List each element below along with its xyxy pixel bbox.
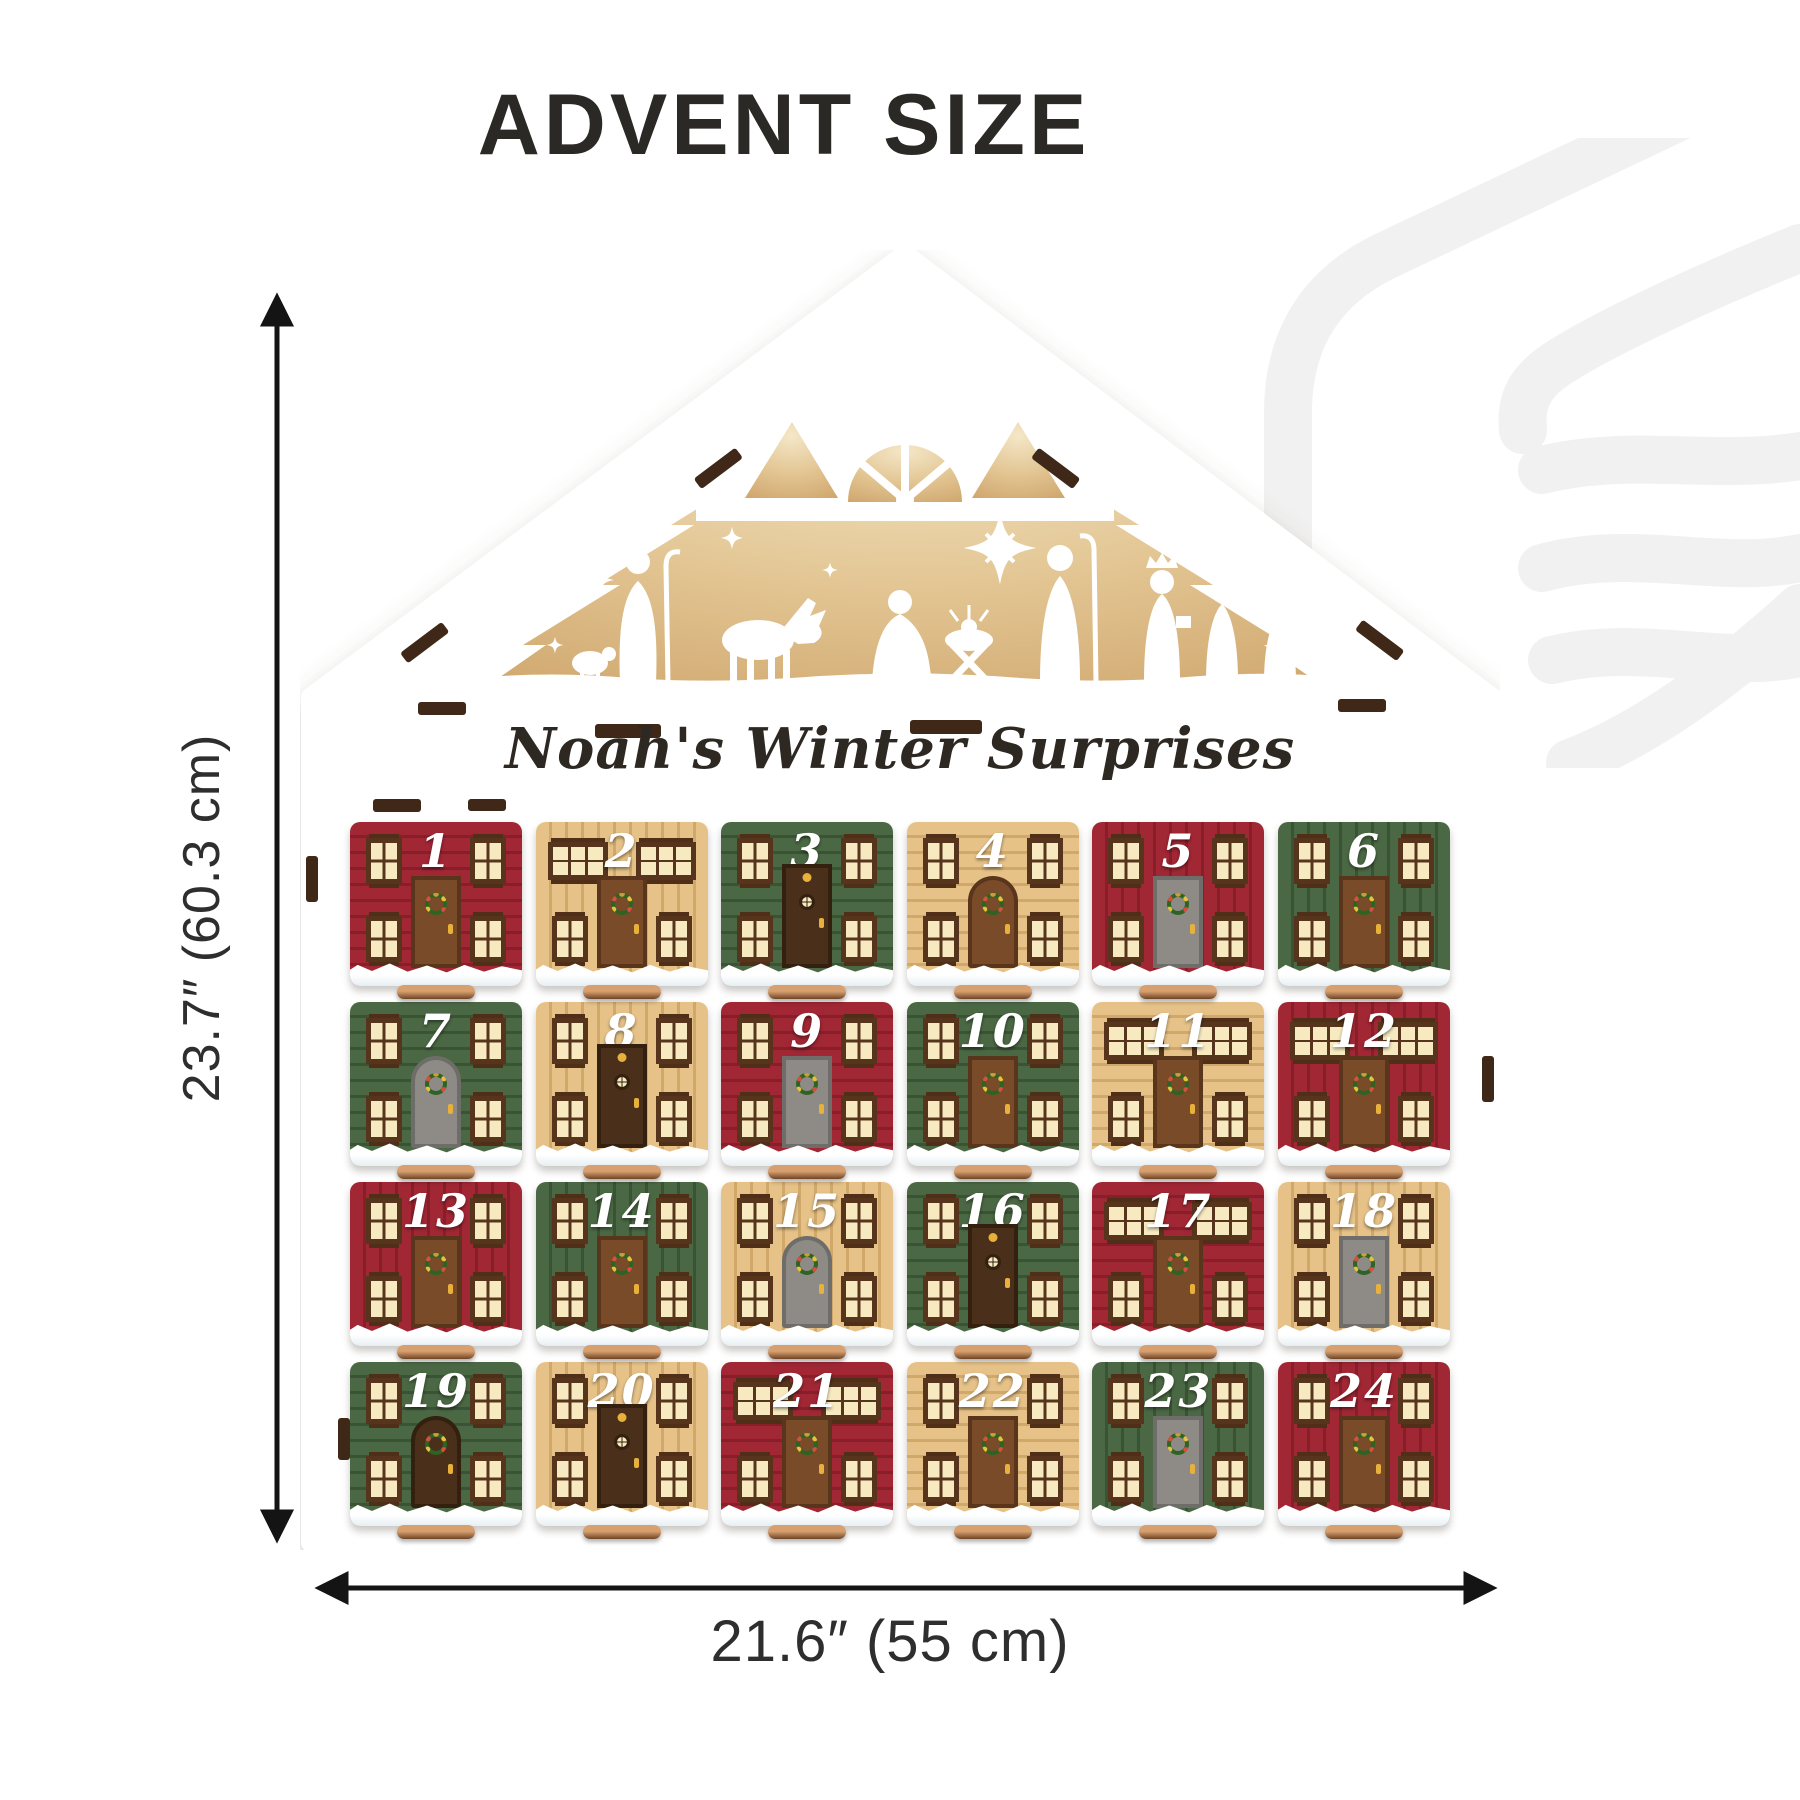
- drawer-handle: [1139, 985, 1217, 999]
- window: [1212, 1276, 1248, 1322]
- drawer-handle: [1325, 1525, 1403, 1539]
- drawer-handle: [583, 1165, 661, 1179]
- advent-box: 19: [350, 1362, 522, 1526]
- box-number: 4: [907, 822, 1079, 880]
- doorknob: [819, 918, 824, 928]
- house-facade: 12: [1278, 1002, 1450, 1166]
- wreath-icon: [1353, 893, 1375, 915]
- window: [552, 1276, 588, 1322]
- advent-box: 1: [350, 822, 522, 986]
- window: [470, 1276, 506, 1322]
- wreath-icon: [1167, 1253, 1189, 1275]
- wreath-icon: [796, 1433, 818, 1455]
- advent-size-infographic: ADVENT SIZE: [0, 0, 1800, 1800]
- page-title: ADVENT SIZE: [0, 76, 1568, 175]
- door: [1339, 876, 1389, 968]
- doorknob: [1376, 1464, 1381, 1474]
- porthole-window: [614, 1074, 630, 1090]
- window: [923, 1456, 959, 1502]
- box-number: 24: [1278, 1362, 1450, 1420]
- window: [656, 1456, 692, 1502]
- window: [923, 916, 959, 962]
- height-dimension-label: 23.7″ (60.3 cm): [172, 618, 232, 1218]
- house-facade: 19: [350, 1362, 522, 1526]
- advent-box: 5: [1092, 822, 1264, 986]
- drawer-handle: [954, 985, 1032, 999]
- window: [1027, 1276, 1063, 1322]
- drawer-handle: [583, 1525, 661, 1539]
- wreath-icon: [982, 1433, 1004, 1455]
- advent-box: 18: [1278, 1182, 1450, 1346]
- advent-box: 6: [1278, 822, 1450, 986]
- house-facade: 18: [1278, 1182, 1450, 1346]
- advent-box: 22: [907, 1362, 1079, 1526]
- box-number: 17: [1092, 1182, 1264, 1240]
- window: [1027, 1096, 1063, 1142]
- door: [1153, 1416, 1203, 1508]
- window: [737, 916, 773, 962]
- house-facade: 6: [1278, 822, 1450, 986]
- drawer-handle: [397, 1165, 475, 1179]
- bell-icon: [988, 1233, 997, 1242]
- advent-box: 24: [1278, 1362, 1450, 1526]
- wreath-icon: [796, 1253, 818, 1275]
- door: [1153, 876, 1203, 968]
- window: [737, 1096, 773, 1142]
- window: [1027, 1456, 1063, 1502]
- house-facade: 24: [1278, 1362, 1450, 1526]
- drawer-handle: [397, 985, 475, 999]
- house-facade: 2: [536, 822, 708, 986]
- doorknob: [1190, 1104, 1195, 1114]
- window: [366, 1276, 402, 1322]
- advent-box: 7: [350, 1002, 522, 1166]
- door: [1339, 1416, 1389, 1508]
- advent-box: 23: [1092, 1362, 1264, 1526]
- bell-icon: [803, 873, 812, 882]
- bell-icon: [617, 1413, 626, 1422]
- drawer-handle: [768, 985, 846, 999]
- window: [552, 1456, 588, 1502]
- box-number: 15: [721, 1182, 893, 1240]
- wreath-icon: [1353, 1073, 1375, 1095]
- drawer-handle: [1325, 985, 1403, 999]
- door: [597, 876, 647, 968]
- window: [366, 1456, 402, 1502]
- doorknob: [1190, 1464, 1195, 1474]
- doorknob: [634, 1098, 639, 1108]
- wreath-icon: [611, 1253, 633, 1275]
- advent-box: 16: [907, 1182, 1079, 1346]
- window: [1398, 1276, 1434, 1322]
- box-number: 14: [536, 1182, 708, 1240]
- house-facade: 21: [721, 1362, 893, 1526]
- door: [411, 876, 461, 968]
- door: [968, 1416, 1018, 1508]
- advent-box: 15: [721, 1182, 893, 1346]
- box-number: 9: [721, 1002, 893, 1060]
- drawer-handle: [583, 985, 661, 999]
- advent-box: 10: [907, 1002, 1079, 1166]
- advent-box: 12: [1278, 1002, 1450, 1166]
- window: [841, 1456, 877, 1502]
- house-facade: 1: [350, 822, 522, 986]
- doorknob: [448, 1104, 453, 1114]
- wreath-icon: [1167, 1433, 1189, 1455]
- advent-grid: 1 2: [350, 822, 1450, 1526]
- window: [841, 916, 877, 962]
- advent-box: 3: [721, 822, 893, 986]
- doorknob: [819, 1104, 824, 1114]
- wreath-icon: [611, 893, 633, 915]
- doorknob: [1005, 924, 1010, 934]
- window: [1398, 1096, 1434, 1142]
- wreath-icon: [982, 1073, 1004, 1095]
- window: [1212, 1456, 1248, 1502]
- name-plaque: Noah's Winter Surprises: [300, 716, 1500, 782]
- house-facade: 15: [721, 1182, 893, 1346]
- doorknob: [819, 1284, 824, 1294]
- door: [968, 1056, 1018, 1148]
- doorknob: [1376, 924, 1381, 934]
- window: [841, 1096, 877, 1142]
- window: [470, 916, 506, 962]
- drawer-handle: [1139, 1165, 1217, 1179]
- door: [411, 1416, 461, 1508]
- door: [782, 1236, 832, 1328]
- window: [656, 1276, 692, 1322]
- drawer-handle: [1139, 1345, 1217, 1359]
- box-number: 5: [1092, 822, 1264, 880]
- wreath-icon: [425, 1073, 447, 1095]
- house-facade: 8: [536, 1002, 708, 1166]
- box-number: 1: [350, 822, 522, 880]
- box-number: 12: [1278, 1002, 1450, 1060]
- door: [1153, 1236, 1203, 1328]
- box-number: 19: [350, 1362, 522, 1420]
- door: [597, 1044, 647, 1148]
- window: [1294, 1456, 1330, 1502]
- window: [470, 1456, 506, 1502]
- drawer-handle: [768, 1525, 846, 1539]
- doorknob: [634, 1458, 639, 1468]
- porthole-window: [985, 1254, 1001, 1270]
- advent-box: 11: [1092, 1002, 1264, 1166]
- house-facade: 10: [907, 1002, 1079, 1166]
- door: [1339, 1056, 1389, 1148]
- advent-calendar: Noah's Winter Surprises 1 2: [300, 250, 1500, 1550]
- window: [366, 916, 402, 962]
- doorknob: [1190, 924, 1195, 934]
- advent-box: 17: [1092, 1182, 1264, 1346]
- drawer-handle: [768, 1345, 846, 1359]
- window: [1212, 1096, 1248, 1142]
- box-number: 18: [1278, 1182, 1450, 1240]
- house-facade: 17: [1092, 1182, 1264, 1346]
- window: [1398, 1456, 1434, 1502]
- doorknob: [819, 1464, 824, 1474]
- drawer-handle: [768, 1165, 846, 1179]
- drawer-handle: [954, 1525, 1032, 1539]
- drawer-handle: [583, 1345, 661, 1359]
- drawer-handle: [1325, 1345, 1403, 1359]
- window: [656, 1096, 692, 1142]
- doorknob: [1190, 1284, 1195, 1294]
- window: [737, 1456, 773, 1502]
- advent-box: 8: [536, 1002, 708, 1166]
- advent-box: 9: [721, 1002, 893, 1166]
- doorknob: [1005, 1104, 1010, 1114]
- advent-box: 2: [536, 822, 708, 986]
- wreath-icon: [425, 893, 447, 915]
- wreath-icon: [425, 1433, 447, 1455]
- doorknob: [1005, 1278, 1010, 1288]
- doorknob: [634, 1284, 639, 1294]
- box-number: 7: [350, 1002, 522, 1060]
- wreath-icon: [1353, 1253, 1375, 1275]
- window: [923, 1276, 959, 1322]
- door: [597, 1236, 647, 1328]
- drawer-handle: [397, 1525, 475, 1539]
- window: [1398, 916, 1434, 962]
- doorknob: [448, 1464, 453, 1474]
- door: [968, 1224, 1018, 1328]
- advent-box: 14: [536, 1182, 708, 1346]
- drawer-handle: [1325, 1165, 1403, 1179]
- doorknob: [634, 924, 639, 934]
- box-number: 11: [1092, 1002, 1264, 1060]
- doorknob: [448, 1284, 453, 1294]
- advent-box: 20: [536, 1362, 708, 1526]
- house-facade: 14: [536, 1182, 708, 1346]
- box-number: 22: [907, 1362, 1079, 1420]
- door: [1339, 1236, 1389, 1328]
- advent-box: 4: [907, 822, 1079, 986]
- window: [656, 916, 692, 962]
- door: [411, 1236, 461, 1328]
- wreath-icon: [1167, 893, 1189, 915]
- house-facade: 16: [907, 1182, 1079, 1346]
- porthole-window: [799, 894, 815, 910]
- doorknob: [1376, 1284, 1381, 1294]
- door: [1153, 1056, 1203, 1148]
- window: [470, 1096, 506, 1142]
- doorknob: [1376, 1104, 1381, 1114]
- drawer-handle: [1139, 1525, 1217, 1539]
- door: [782, 864, 832, 968]
- wreath-icon: [982, 893, 1004, 915]
- box-number: 13: [350, 1182, 522, 1240]
- door: [968, 876, 1018, 968]
- window: [1108, 1096, 1144, 1142]
- doorknob: [1005, 1464, 1010, 1474]
- drawer-handle: [954, 1165, 1032, 1179]
- house-facade: 3: [721, 822, 893, 986]
- wreath-icon: [796, 1073, 818, 1095]
- drawer-handle: [954, 1345, 1032, 1359]
- house-facade: 4: [907, 822, 1079, 986]
- window: [1294, 916, 1330, 962]
- house-facade: 20: [536, 1362, 708, 1526]
- box-number: 10: [907, 1002, 1079, 1060]
- advent-box: 13: [350, 1182, 522, 1346]
- advent-box: 21: [721, 1362, 893, 1526]
- door: [411, 1056, 461, 1148]
- width-dimension-label: 21.6″ (55 cm): [440, 1608, 1340, 1675]
- window: [1027, 916, 1063, 962]
- box-number: 23: [1092, 1362, 1264, 1420]
- doorknob: [448, 924, 453, 934]
- wreath-icon: [1353, 1433, 1375, 1455]
- window: [1108, 1456, 1144, 1502]
- bell-icon: [617, 1053, 626, 1062]
- porthole-window: [614, 1434, 630, 1450]
- door: [782, 1056, 832, 1148]
- door: [782, 1416, 832, 1508]
- window: [1212, 916, 1248, 962]
- house-facade: 9: [721, 1002, 893, 1166]
- box-number: 6: [1278, 822, 1450, 880]
- window: [923, 1096, 959, 1142]
- box-number: 21: [721, 1362, 893, 1420]
- house-facade: 23: [1092, 1362, 1264, 1526]
- wreath-icon: [1167, 1073, 1189, 1095]
- house-facade: 5: [1092, 822, 1264, 986]
- window: [552, 916, 588, 962]
- wreath-icon: [425, 1253, 447, 1275]
- house-facade: 7: [350, 1002, 522, 1166]
- box-number: 2: [536, 822, 708, 880]
- window: [1294, 1276, 1330, 1322]
- drawer-handle: [397, 1345, 475, 1359]
- window: [841, 1276, 877, 1322]
- window: [1108, 916, 1144, 962]
- window: [552, 1096, 588, 1142]
- window: [366, 1096, 402, 1142]
- house-facade: 11: [1092, 1002, 1264, 1166]
- door: [597, 1404, 647, 1508]
- window: [1108, 1276, 1144, 1322]
- house-facade: 22: [907, 1362, 1079, 1526]
- window: [1294, 1096, 1330, 1142]
- house-facade: 13: [350, 1182, 522, 1346]
- window: [737, 1276, 773, 1322]
